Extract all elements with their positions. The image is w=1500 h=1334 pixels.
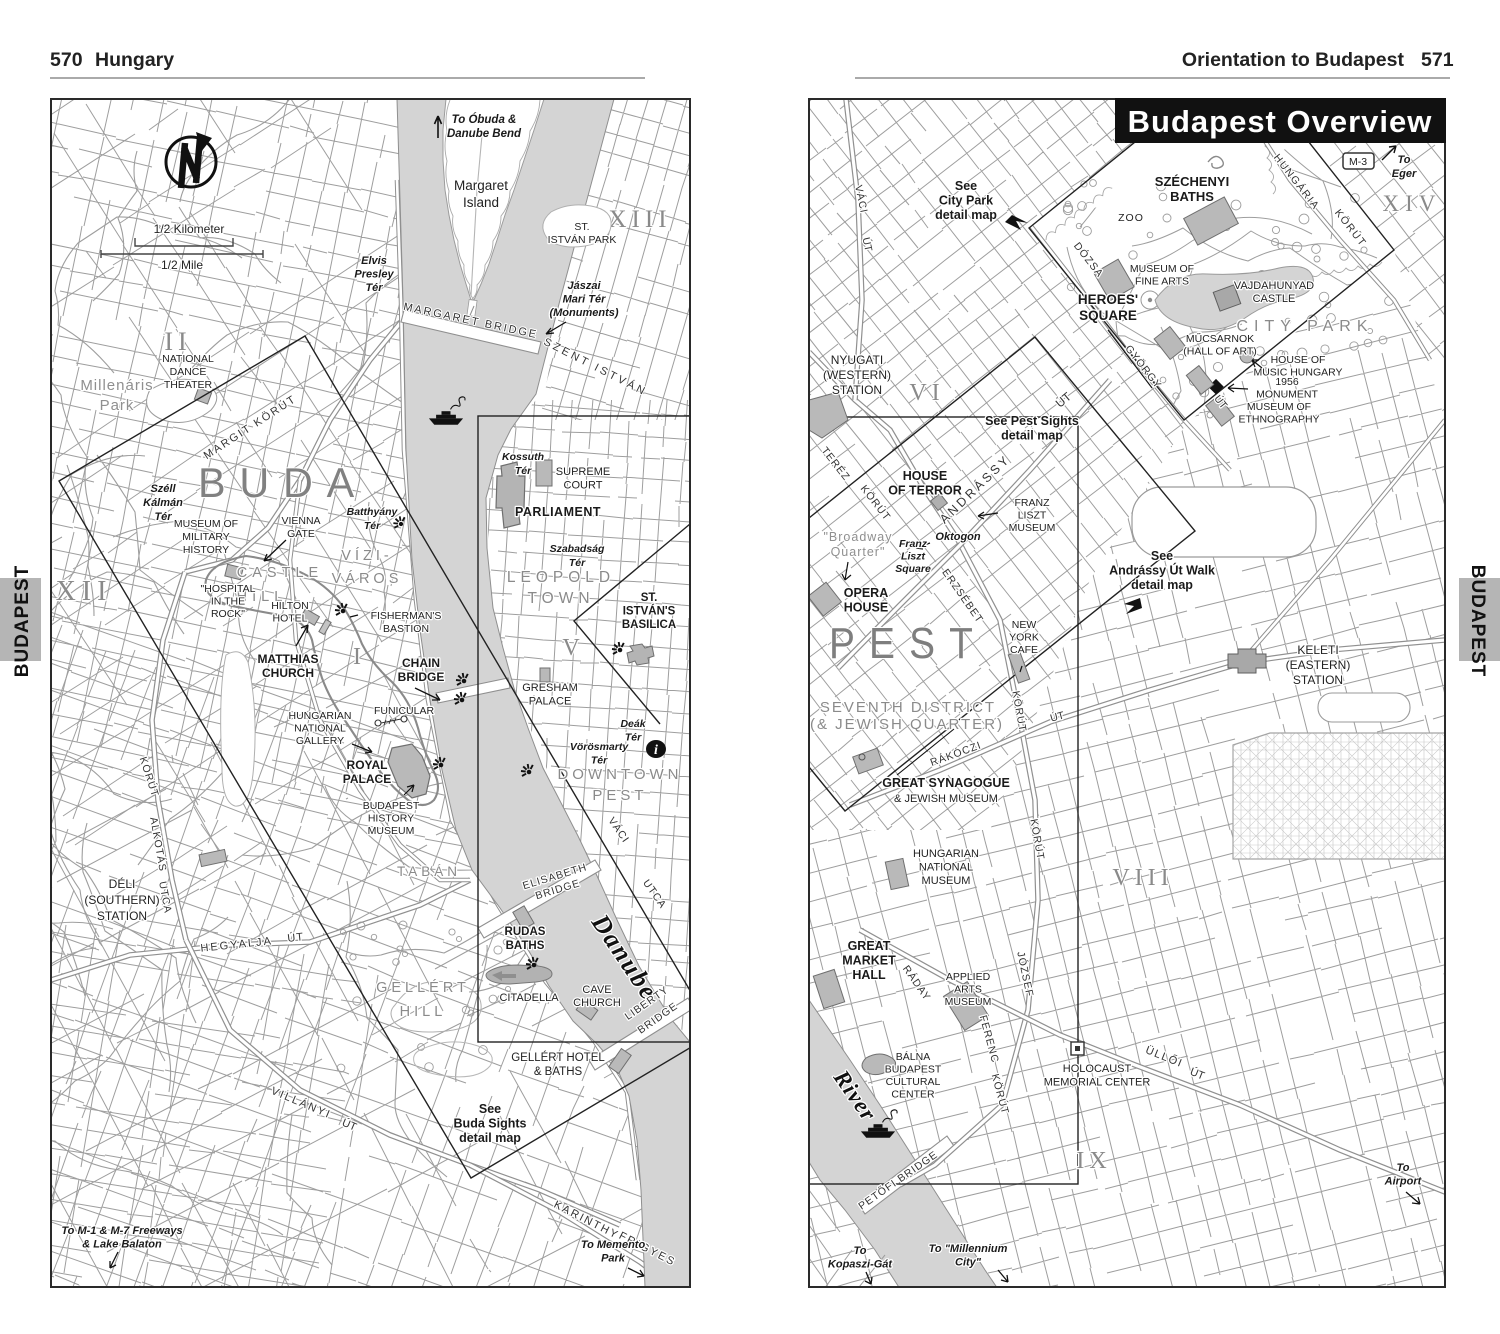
svg-text:VAJDAHUNYAD: VAJDAHUNYAD [1234,280,1314,292]
svg-text:GRESHAM: GRESHAM [522,682,578,694]
svg-text:Presley: Presley [354,269,394,281]
svg-text:To Memento: To Memento [581,1239,646,1251]
svg-text:Kossuth: Kossuth [502,451,544,463]
svg-text:(HALL OF ART): (HALL OF ART) [1183,346,1257,358]
svg-text:MONUMENT: MONUMENT [1256,389,1318,401]
svg-text:Franz: Franz [899,538,928,550]
svg-text:"Broadway: "Broadway [823,530,892,544]
svg-text:ROCK": ROCK" [211,608,245,620]
svg-text:HOUSE: HOUSE [844,601,888,615]
svg-text:STATION: STATION [832,383,882,397]
svg-text:HOUSE OF: HOUSE OF [1271,354,1326,366]
svg-text:Buda Sights: Buda Sights [454,1117,527,1131]
svg-text:Széll: Széll [150,483,176,495]
svg-text:SZÉCHENYI: SZÉCHENYI [1155,174,1229,189]
svg-text:SQUARE: SQUARE [1079,308,1137,323]
svg-text:GELLÉRT: GELLÉRT [376,979,470,996]
svg-text:BATHS: BATHS [1170,189,1214,204]
svg-text:YORK: YORK [1009,632,1039,644]
svg-text:"HOSPITAL: "HOSPITAL [201,583,256,595]
svg-text:MUSEUM: MUSEUM [922,875,971,887]
svg-text:NATIONAL: NATIONAL [919,862,973,874]
svg-text:VÁROS: VÁROS [332,570,403,587]
svg-text:GREAT SYNAGOGUE: GREAT SYNAGOGUE [882,776,1010,790]
svg-text:See Pest Sights: See Pest Sights [985,414,1079,428]
svg-text:VIENNA: VIENNA [281,515,320,527]
svg-text:VÁCI: VÁCI [605,815,632,846]
svg-text:SUPREME: SUPREME [556,466,610,478]
svg-text:HEGYALJA: HEGYALJA [200,935,274,955]
svg-text:& BATHS: & BATHS [534,1066,583,1078]
svg-text:OPERA: OPERA [844,586,888,600]
svg-text:GELLÉRT HOTEL: GELLÉRT HOTEL [511,1051,605,1064]
svg-text:570: 570 [50,49,83,71]
svg-text:CASTLE: CASTLE [237,565,323,581]
svg-text:Danube Bend: Danube Bend [447,128,522,140]
svg-text:MUSEUM: MUSEUM [368,825,415,837]
svg-text:CHAIN: CHAIN [402,656,440,670]
svg-text:To M-1 & M-7 Freeways: To M-1 & M-7 Freeways [61,1225,182,1237]
svg-text:ST.: ST. [641,592,658,604]
svg-text:Park: Park [100,397,135,414]
svg-text:Eger: Eger [1392,168,1417,180]
svg-text:Mari Tér: Mari Tér [563,294,607,306]
svg-text:CASTLE: CASTLE [1253,293,1296,305]
svg-text:(& JEWISH QUARTER): (& JEWISH QUARTER) [810,716,1004,733]
svg-text:To: To [1396,1162,1409,1174]
svg-text:HOTEL: HOTEL [272,613,307,625]
svg-text:& Lake Balaton: & Lake Balaton [82,1239,162,1251]
svg-text:ÚT: ÚT [1049,708,1066,724]
svg-text:THEATER: THEATER [164,379,213,391]
svg-text:HUNGARIAN: HUNGARIAN [913,848,979,860]
svg-text:See: See [955,179,977,193]
svg-text:FISHERMAN'S: FISHERMAN'S [371,610,442,622]
svg-text:571: 571 [1421,49,1454,71]
svg-text:Tér: Tér [154,511,172,523]
svg-text:PALACE: PALACE [343,772,391,786]
svg-text:MUSEUM: MUSEUM [1009,522,1056,534]
svg-text:ARTS: ARTS [954,984,982,996]
svg-text:BATHS: BATHS [506,940,545,952]
svg-text:MŰCSARNOK: MŰCSARNOK [1186,331,1254,345]
svg-text:PEST: PEST [592,787,647,804]
svg-text:MUSEUM OF: MUSEUM OF [174,518,238,530]
svg-text:CITY PARK: CITY PARK [1237,318,1374,335]
svg-text:BUDAPEST: BUDAPEST [1467,565,1488,678]
svg-text:detail map: detail map [935,208,997,222]
svg-text:Airport: Airport [1384,1176,1423,1188]
svg-text:XIV: XIV [1383,191,1442,216]
svg-text:M-3: M-3 [1349,156,1367,168]
svg-text:TOWN: TOWN [527,590,594,607]
svg-text:detail map: detail map [1001,429,1063,443]
svg-text:PARLIAMENT: PARLIAMENT [515,505,601,519]
svg-text:IX: IX [1076,1148,1111,1174]
svg-text:To "Millennium: To "Millennium [929,1243,1008,1255]
svg-text:BÁLNA: BÁLNA [896,1050,930,1063]
svg-text:Tér: Tér [515,465,532,477]
svg-text:Jászai: Jászai [567,280,601,292]
svg-text:MARKET: MARKET [842,954,896,968]
svg-text:KELETI: KELETI [1297,643,1338,657]
svg-text:I: I [353,644,361,670]
svg-text:NEW: NEW [1012,619,1037,631]
svg-text:To Óbuda &: To Óbuda & [452,113,517,126]
svg-text:Deák: Deák [620,718,646,730]
svg-text:HILTON: HILTON [271,600,309,612]
svg-text:Andrássy Út Walk: Andrássy Út Walk [1109,563,1215,578]
svg-text:CHURCH: CHURCH [573,997,621,1009]
svg-text:FINE ARTS: FINE ARTS [1135,276,1189,288]
svg-text:Liszt: Liszt [901,551,925,563]
svg-text:NATIONAL: NATIONAL [162,353,214,365]
svg-text:Island: Island [463,195,499,210]
svg-text:Hungary: Hungary [95,49,174,71]
svg-text:CITADELLA: CITADELLA [499,992,559,1004]
svg-text:(SOUTHERN): (SOUTHERN) [84,893,159,907]
svg-text:BUDAPEST: BUDAPEST [363,800,420,812]
svg-text:Tér: Tér [365,282,383,294]
svg-text:ETHNOGRAPHY: ETHNOGRAPHY [1238,414,1319,426]
svg-text:APPLIED: APPLIED [946,971,991,983]
svg-text:HILL: HILL [400,1004,447,1020]
svg-text:Tér: Tér [569,557,586,569]
svg-text:SEVENTH DISTRICT: SEVENTH DISTRICT [820,699,996,716]
svg-text:GATE: GATE [287,528,315,540]
svg-text:VI: VI [909,380,944,406]
svg-text:KÖRÚT: KÖRÚT [1009,690,1029,733]
svg-text:HISTORY: HISTORY [183,544,229,556]
svg-text:Batthyány: Batthyány [347,506,399,518]
svg-text:HISTORY: HISTORY [368,813,414,825]
svg-text:Kopaszi-Gát: Kopaszi-Gát [828,1259,894,1271]
svg-text:MUSEUM: MUSEUM [945,996,992,1008]
svg-text:Elvis: Elvis [361,255,387,267]
svg-text:GALLERY: GALLERY [296,735,344,747]
svg-text:FERENC: FERENC [977,1014,1001,1065]
svg-text:IN THE: IN THE [211,596,245,608]
svg-text:1/2 Kilometer: 1/2 Kilometer [154,222,225,236]
svg-text:To: To [1397,154,1410,166]
svg-text:ÚT: ÚT [1052,388,1074,410]
svg-text:Millenáris: Millenáris [80,377,153,394]
svg-text:STATION: STATION [1293,673,1343,687]
svg-text:CULTURAL: CULTURAL [886,1076,941,1088]
svg-text:Szabadság: Szabadság [550,543,605,555]
svg-text:GREAT: GREAT [848,939,891,953]
svg-text:FRANZ: FRANZ [1015,497,1051,509]
svg-text:PALACE: PALACE [529,696,572,708]
svg-text:MUSEUM OF: MUSEUM OF [1130,263,1194,275]
svg-text:XII: XII [56,576,113,607]
svg-text:Tér: Tér [364,520,381,532]
svg-text:DOWNTOWN: DOWNTOWN [557,766,682,783]
svg-text:1/2 Mile: 1/2 Mile [161,258,203,272]
svg-text:DÉLI: DÉLI [109,876,136,891]
svg-text:KÖRÚT: KÖRÚT [1027,818,1047,861]
svg-text:FUNICULAR: FUNICULAR [374,705,435,717]
svg-text:UTCA: UTCA [640,877,669,911]
svg-text:Budapest Overview: Budapest Overview [1128,104,1433,139]
svg-text:BASTION: BASTION [383,623,429,635]
svg-text:ÚT: ÚT [1188,1065,1207,1083]
svg-text:NYUGATI: NYUGATI [831,353,883,367]
svg-text:MEMORIAL CENTER: MEMORIAL CENTER [1044,1077,1151,1089]
svg-text:& JEWISH MUSEUM: & JEWISH MUSEUM [894,793,998,805]
svg-text:ROYAL: ROYAL [347,758,388,772]
svg-text:PEST: PEST [829,619,987,668]
svg-text:CENTER: CENTER [891,1089,935,1101]
svg-text:COURT: COURT [564,480,603,492]
svg-text:City": City" [955,1257,982,1269]
svg-text:BRIDGE: BRIDGE [398,670,445,684]
svg-text:BUDA: BUDA [198,459,368,506]
svg-text:(WESTERN): (WESTERN) [823,368,891,382]
svg-text:BUDAPEST: BUDAPEST [885,1064,942,1076]
svg-text:HEROES': HEROES' [1078,292,1138,307]
svg-text:VÍZI-: VÍZI- [341,547,392,564]
svg-text:detail map: detail map [1131,578,1193,592]
svg-text:Kálmán: Kálmán [143,497,183,509]
svg-text:Oktogon: Oktogon [935,531,980,543]
svg-text:ÚT: ÚT [287,930,305,945]
svg-text:VIII: VIII [1112,865,1173,891]
svg-text:OF TERROR: OF TERROR [888,484,962,498]
svg-text:XIII: XIII [608,206,671,233]
svg-text:Margaret: Margaret [454,178,508,193]
svg-text:V: V [562,635,580,661]
svg-text:MATTHIAS: MATTHIAS [257,652,318,666]
svg-text:Orientation to Budapest: Orientation to Budapest [1182,49,1405,71]
svg-text:MUSEUM OF: MUSEUM OF [1247,401,1311,413]
svg-text:ZOO: ZOO [1118,212,1144,224]
svg-text:Tér: Tér [591,755,608,767]
svg-text:ST.: ST. [574,221,589,233]
svg-text:City Park: City Park [939,194,993,208]
svg-text:LISZT: LISZT [1018,510,1047,522]
svg-text:VÁCI: VÁCI [852,184,871,215]
svg-text:Square: Square [895,563,931,575]
svg-text:Park: Park [601,1253,626,1265]
svg-text:DANCE: DANCE [170,366,207,378]
svg-text:HALL: HALL [852,968,886,982]
svg-text:HOUSE: HOUSE [903,469,947,483]
svg-text:(EASTERN): (EASTERN) [1286,658,1351,672]
svg-text:CAVE: CAVE [582,984,611,996]
svg-text:NATIONAL: NATIONAL [294,723,346,735]
svg-text:See: See [1151,549,1173,563]
svg-text:i: i [654,743,658,758]
svg-text:ISTVÁN PARK: ISTVÁN PARK [548,233,617,246]
svg-text:Vörösmarty: Vörösmarty [570,741,630,753]
svg-text:detail map: detail map [459,1131,521,1145]
svg-text:1956: 1956 [1275,376,1299,388]
svg-text:To: To [853,1245,866,1257]
svg-text:BUDAPEST: BUDAPEST [12,565,33,678]
svg-text:See: See [479,1102,501,1116]
svg-text:Quarter": Quarter" [831,545,886,559]
svg-text:CAFE: CAFE [1010,644,1038,656]
svg-text:II: II [164,327,191,356]
svg-text:BASILICA: BASILICA [622,619,676,631]
svg-text:(Monuments): (Monuments) [549,307,618,319]
svg-text:HUNGARIAN: HUNGARIAN [288,710,351,722]
svg-text:LEOPOLD: LEOPOLD [507,569,615,586]
svg-text:STATION: STATION [97,909,147,923]
svg-text:HOLOCAUST: HOLOCAUST [1063,1063,1132,1075]
svg-text:TABÁN: TABÁN [397,864,461,879]
svg-text:ISTVÁN'S: ISTVÁN'S [623,605,676,618]
svg-text:MILITARY: MILITARY [182,531,229,543]
svg-text:RUDAS: RUDAS [505,926,546,938]
svg-text:CHURCH: CHURCH [262,666,314,680]
